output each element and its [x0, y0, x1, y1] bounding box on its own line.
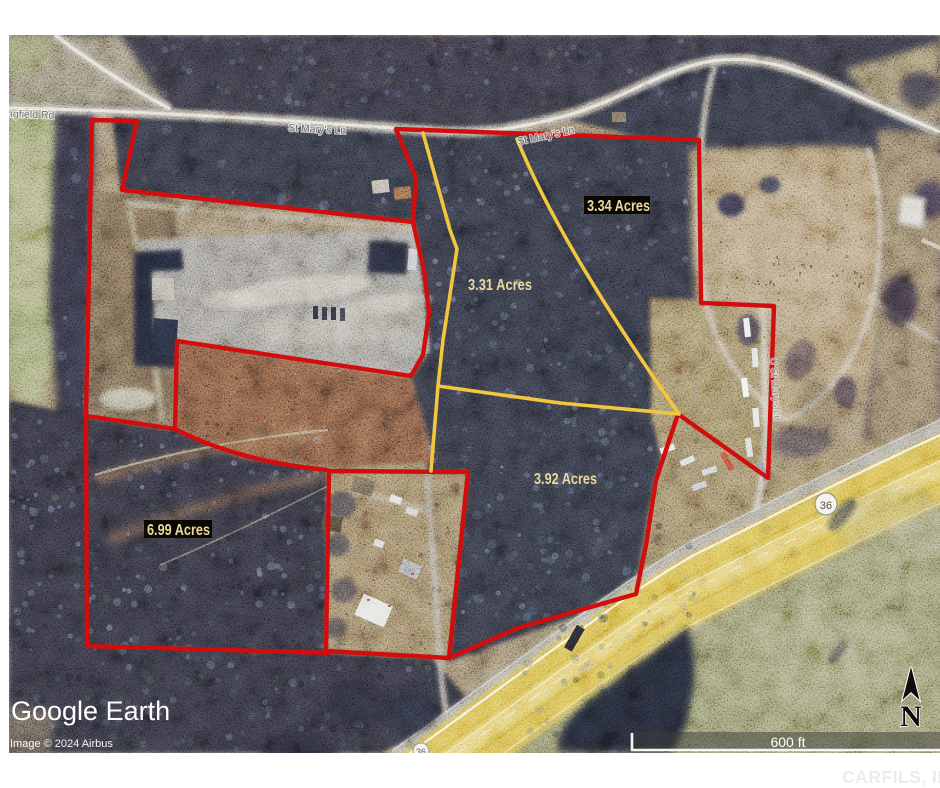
- svg-text:ngfield Rd: ngfield Rd: [7, 108, 55, 122]
- svg-text:3.31 Acres: 3.31 Acres: [468, 277, 532, 294]
- svg-text:600 ft: 600 ft: [770, 734, 805, 750]
- svg-text:Image © 2024 Airbus: Image © 2024 Airbus: [10, 738, 113, 750]
- svg-text:36: 36: [820, 500, 832, 512]
- svg-text:CARFILS, INC: CARFILS, INC: [842, 767, 940, 787]
- svg-text:6.99 Acres: 6.99 Acres: [147, 522, 210, 539]
- svg-text:3.34 Acres: 3.34 Acres: [587, 198, 650, 215]
- svg-text:Google Earth: Google Earth: [11, 696, 170, 726]
- svg-text:N: N: [900, 700, 922, 733]
- svg-text:3.92 Acres: 3.92 Acres: [534, 471, 597, 488]
